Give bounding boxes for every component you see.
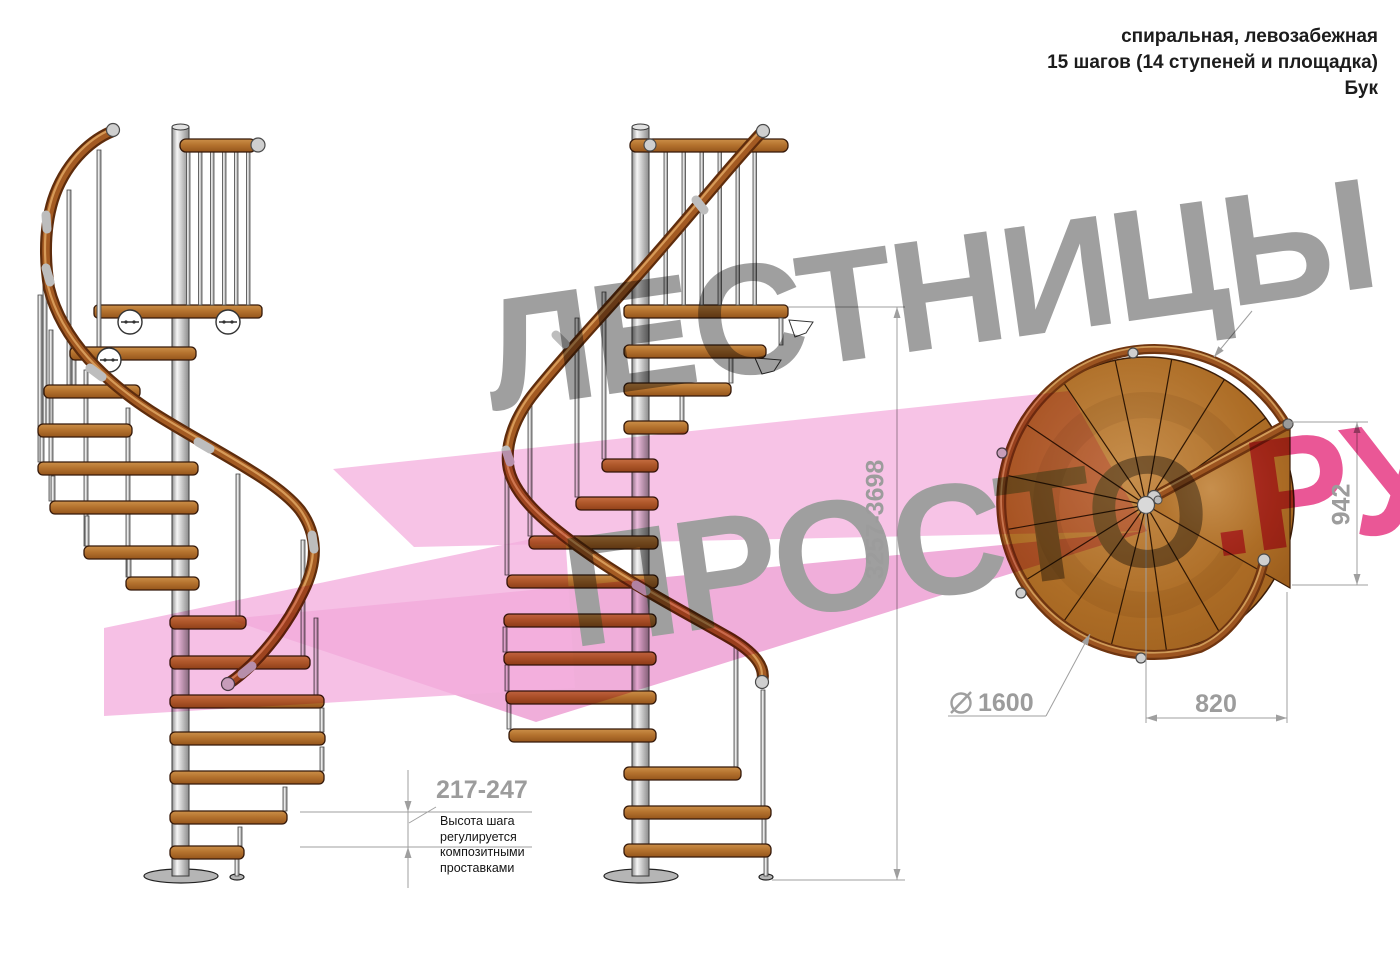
platform-width-dimension: 820 xyxy=(1176,690,1256,719)
side-view-front xyxy=(503,124,813,883)
platform-depth-dimension: 942 xyxy=(1328,465,1357,545)
joint-discs xyxy=(97,310,240,372)
spec-material: Бук xyxy=(1047,76,1378,102)
staircase-drawing xyxy=(0,0,1400,953)
plan-center-pole xyxy=(1138,497,1155,514)
drawing-canvas: ЛЕСТНИЦЫ ПРОСТО.РУ спиральная, левозабеж… xyxy=(0,0,1400,953)
step-height-note: Высота шага регулируется композитными пр… xyxy=(440,814,570,876)
diameter-dimension: 1600 xyxy=(978,689,1034,718)
diameter-icon xyxy=(951,692,971,713)
side-view-left xyxy=(38,124,325,884)
spec-steps: 15 шагов (14 ступеней и площадка) xyxy=(1047,50,1378,76)
spec-block: спиральная, левозабежная 15 шагов (14 ст… xyxy=(1047,24,1378,102)
spec-type: спиральная, левозабежная xyxy=(1047,24,1378,50)
step-height-dimension: 217-247 xyxy=(436,776,528,805)
total-height-dimension: 3257-3698 xyxy=(862,450,891,590)
